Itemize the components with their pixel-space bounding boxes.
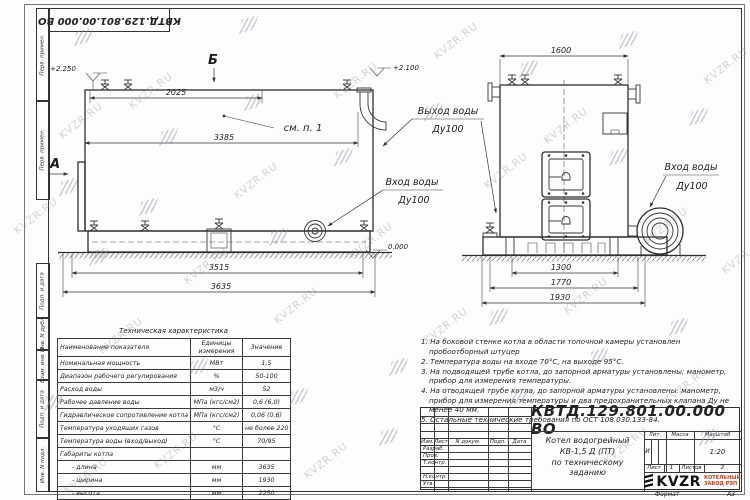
table-cell: мм [191,461,243,474]
table-cell: Расход воды [58,383,191,396]
table-cell: °С [191,435,243,448]
table-cell: 1930 [243,474,291,487]
dim-1600: 1600 [551,46,571,55]
table-cell: 3635 [243,461,291,474]
valve-icon [90,221,98,231]
table-row: - высотамм2250 [58,487,291,500]
table-cell [243,448,291,461]
scale-value: 1:20 [694,439,741,464]
table-row: - длинамм3635 [58,461,291,474]
table-cell: Гидравлическое сопротивление котла [58,409,191,422]
tech-table-title: Техническая характеристика [57,327,290,335]
rev-header-docnum: N докум. [448,438,488,445]
note-item: 1. На боковой стенке котла в области топ… [421,337,739,356]
tech-table-header: Значение [243,339,291,357]
elevation-2100: +2.100 [393,64,419,72]
table-row: Гидравлическое сопротивление котлаМПа (к… [58,409,291,422]
see-note-callout: см. п. 1 [284,123,323,134]
table-cell: м3/ч [191,383,243,396]
table-cell [191,448,243,461]
view-b-label: Б [208,53,218,68]
dim-3635: 3635 [211,282,231,291]
logo-subtitle: КОТЕЛЬНЫЙ ЗАВОД РЭП [704,476,741,488]
table-cell: 0,6 (6,0) [243,396,291,409]
sheet-label: Лист [644,464,664,472]
row-tkontr: Т.контр. [421,459,448,466]
table-cell: - ширина [58,474,191,487]
margin-label: Взам. инв. N [40,347,46,383]
row-razrab: Разраб. [421,445,448,452]
dim-3385: 3385 [214,133,234,142]
margin-label: Подп. и дата [40,272,46,309]
table-row: Расход водым3/ч52 [58,383,291,396]
dim-1300: 1300 [551,263,571,272]
table-cell: МПа (кгс/см2) [191,396,243,409]
outlet-dn: Ду100 [431,124,463,135]
table-cell: 0,06 (0,6) [243,409,291,422]
tech-table-header-row: Наименование показателяЕдиницы измерения… [58,339,291,357]
dim-3515: 3515 [209,263,229,272]
margin-label: Подп. и дата [40,390,46,427]
sheets-label: Листов [679,464,704,472]
scale-header: Масштаб [694,431,741,439]
table-row: Рабочее давление водыМПа (кгс/см2)0,6 (6… [58,396,291,409]
drawing-sheet: КВТД.129.801.00.000 ВО Перв. примен.Перв… [0,0,750,500]
logo-icon [644,474,653,489]
valve-icon [486,223,494,233]
valve-icon [215,219,223,229]
table-row: Номинальная мощностьМВт1,5 [58,357,291,370]
table-cell: °С [191,422,243,435]
dim-1770: 1770 [551,278,571,287]
table-cell: - высота [58,487,191,500]
rev-header-list: Лист [434,438,448,445]
inlet-flange-front [628,208,683,255]
inverted-doc-number-stamp: КВТД.129.801.00.000 ВО [48,8,170,32]
table-cell: Температура воды (вход/выход) [58,435,191,448]
mass-header: Масса [666,431,694,439]
outlet-pipe-bend [357,88,386,130]
valve-icon [343,80,351,90]
dim-2025: 2025 [166,88,186,97]
table-cell: мм [191,487,243,500]
valve-icon [124,80,132,90]
table-row: - ширинамм1930 [58,474,291,487]
furnace-door-upper [542,152,590,197]
table-cell: Температура уходящих газов [58,422,191,435]
tech-table-header: Наименование показателя [58,339,191,357]
margin-label-box: Подп. и дата [36,379,50,439]
table-cell: Рабочее давление воды [58,396,191,409]
margin-label-box: Подп. и дата [36,263,50,319]
furnace-door-lower [542,199,590,240]
margin-label-box: Перв. примен. [36,100,50,200]
row-utv: Утв. [421,480,448,487]
margin-label-box: Инв. N подл. [36,437,50,492]
table-cell: 1,5 [243,357,291,370]
table-cell: 70/95 [243,435,291,448]
dim-1930: 1930 [550,293,570,302]
inlet-front-label: Вход воды [664,162,718,173]
margin-label: Перв. примен. [40,129,46,170]
margin-label-box: Взам. инв. N [36,349,50,381]
valve-icon [614,75,622,85]
sheets-value: 2 [704,464,741,472]
tech-table-header: Единицы измерения [191,339,243,357]
table-row: Габариты котла [58,448,291,461]
row-nkontr: Н.контр. [421,473,448,480]
table-cell: Номинальная мощность [58,357,191,370]
note-item: 3. На подводящей трубе котла, до запорно… [421,367,739,386]
inlet-side-dn: Ду100 [397,195,429,206]
title-block: Изм. Лист N докум. Подп. Дата Разраб. Пр… [420,407,740,490]
rev-header-izm: Изм. [421,438,434,445]
table-cell: Диапазон рабочего регулирования [58,370,191,383]
valve-icon [141,221,149,231]
inlet-front-dn: Ду100 [675,181,707,192]
elevation-0000: 0.000 [388,243,409,251]
table-cell: % [191,370,243,383]
table-row: Температура воды (вход/выход)°С70/95 [58,435,291,448]
table-row: Температура уходящих газов°Сне более 220 [58,422,291,435]
table-cell: не более 220 [243,422,291,435]
valve-icon [521,75,529,85]
inlet-side-label: Вход воды [385,177,439,188]
table-cell: 50-100 [243,370,291,383]
margin-label: Инв. N подл. [40,446,46,482]
table-cell: 52 [243,383,291,396]
valve-icon [360,221,368,231]
table-cell: МВт [191,357,243,370]
sheet-value: 1 [664,464,679,472]
elevation-2250: +2.250 [50,65,76,73]
inverted-doc-number: КВТД.129.801.00.000 ВО [38,15,181,26]
table-cell: 2250 [243,487,291,500]
margin-label: Перв. примен. [40,34,46,75]
table-cell: МПа (кгс/см2) [191,409,243,422]
side-view [58,80,392,259]
logo-text: KVZR [656,474,701,490]
margin-label-box: Инв. N дубл. [36,317,50,351]
outlet-label: Выход воды [418,106,479,117]
drawing-title: Котел водогрейный КВ-1,5 Д (ПТ) по техни… [533,436,642,479]
tech-table: Наименование показателяЕдиницы измерения… [57,338,291,500]
table-cell: мм [191,474,243,487]
table-row: Диапазон рабочего регулирования%50-100 [58,370,291,383]
valve-icon [508,75,516,85]
rev-header-podp: Подп. [488,438,508,445]
view-a-label: А [49,157,60,172]
company-logo: KVZR КОТЕЛЬНЫЙ ЗАВОД РЭП [644,472,741,491]
note-item: 2. Температура воды на входе 70°С, на вы… [421,357,739,367]
format-note: Формат А3 [655,491,735,498]
rev-header-data: Дата [508,438,531,445]
lit-header: Лит. [644,431,666,439]
table-cell: - длина [58,461,191,474]
valve-icon [101,80,109,90]
lit-value: И [644,439,651,464]
margin-label-box: Перв. примен. [36,8,50,102]
row-prov: Пров. [421,452,448,459]
table-cell: Габариты котла [58,448,191,461]
